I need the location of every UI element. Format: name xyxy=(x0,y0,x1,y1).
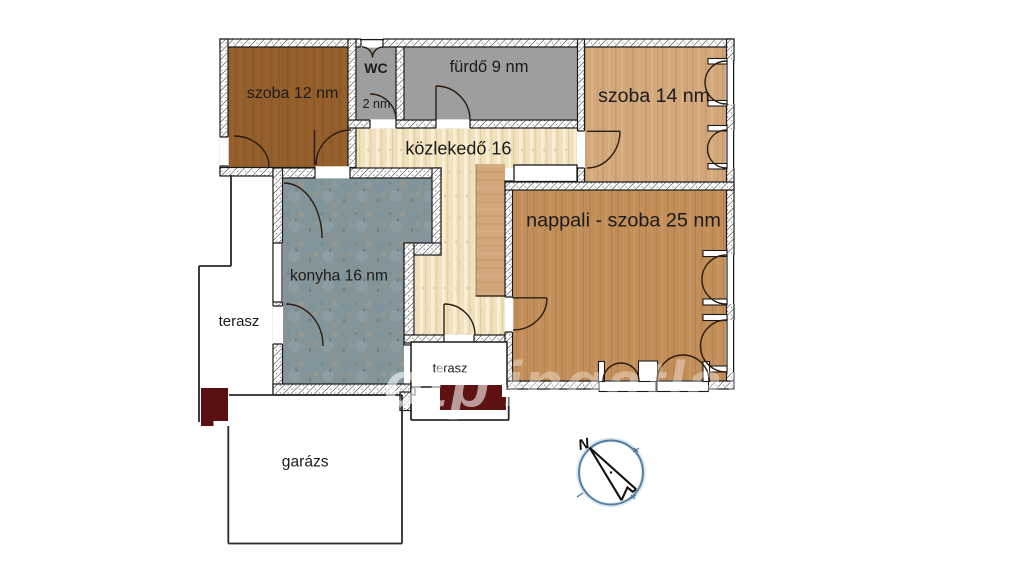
svg-text:ingatlanpont: ingatlanpont xyxy=(504,348,913,420)
svg-text:konyha 16 nm: konyha 16 nm xyxy=(290,268,388,285)
svg-text:szoba 14 nm: szoba 14 nm xyxy=(598,85,710,107)
svg-text:nappali - szoba 25 nm: nappali - szoba 25 nm xyxy=(526,210,721,232)
svg-text:közlekedő 16: közlekedő 16 xyxy=(405,139,511,159)
svg-text:2 nm: 2 nm xyxy=(363,97,391,111)
svg-text:garázs: garázs xyxy=(282,454,329,471)
svg-text:otp: otp xyxy=(384,348,493,420)
svg-text:szoba 12 nm: szoba 12 nm xyxy=(247,85,339,102)
svg-text:terasz: terasz xyxy=(219,313,260,330)
svg-text:fürdő 9 nm: fürdő 9 nm xyxy=(450,58,529,76)
svg-text:N: N xyxy=(576,435,592,454)
svg-text:WC: WC xyxy=(364,60,387,76)
